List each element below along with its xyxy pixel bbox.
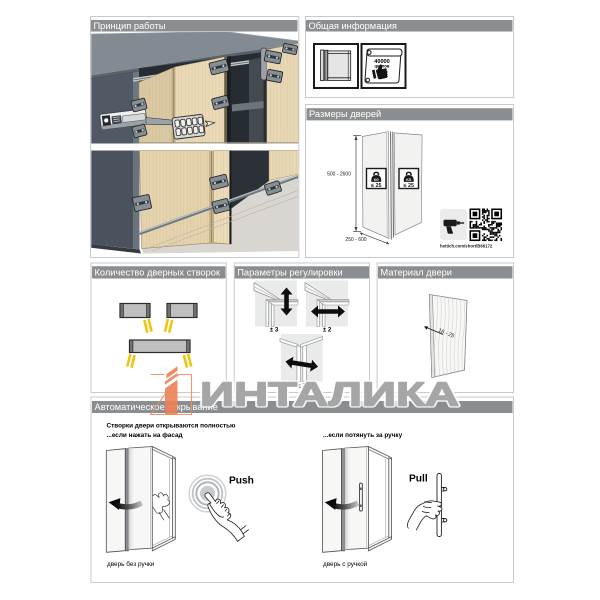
- svg-text:≤ 25: ≤ 25: [404, 183, 414, 189]
- svg-text:дверь без ручки: дверь без ручки: [107, 560, 155, 568]
- svg-text:ИНТАЛИКА: ИНТАЛИКА: [200, 376, 459, 413]
- svg-text:Материал двери: Материал двери: [381, 267, 452, 277]
- svg-text:Общая информация: Общая информация: [309, 21, 397, 31]
- svg-text:500 - 2600: 500 - 2600: [327, 172, 351, 178]
- svg-text:Параметры регулировки: Параметры регулировки: [237, 267, 342, 277]
- svg-text:KG: KG: [406, 178, 411, 182]
- svg-text:...если потянуть за ручку: ...если потянуть за ручку: [323, 432, 403, 439]
- svg-text:Push: Push: [229, 476, 254, 487]
- svg-text:± 2: ± 2: [323, 327, 332, 334]
- svg-text:...если нажать на фасад: ...если нажать на фасад: [107, 432, 183, 439]
- svg-text:250 - 600: 250 - 600: [345, 237, 366, 243]
- svg-text:Количество дверных створок: Количество дверных створок: [95, 267, 221, 277]
- svg-text:≤ 25: ≤ 25: [371, 183, 381, 189]
- svg-text:дверь с ручкой: дверь с ручкой: [323, 560, 368, 568]
- svg-text:Принцип работы: Принцип работы: [94, 21, 166, 31]
- svg-text:Створки двери открываются полн: Створки двери открываются полностью: [107, 422, 237, 429]
- svg-text:Размеры дверей: Размеры дверей: [309, 109, 381, 119]
- svg-text:hettich.com/short/B66172: hettich.com/short/B66172: [440, 244, 493, 249]
- svg-text:± 3: ± 3: [270, 327, 279, 334]
- svg-text:KG: KG: [374, 178, 379, 182]
- svg-text:Pull: Pull: [409, 474, 428, 485]
